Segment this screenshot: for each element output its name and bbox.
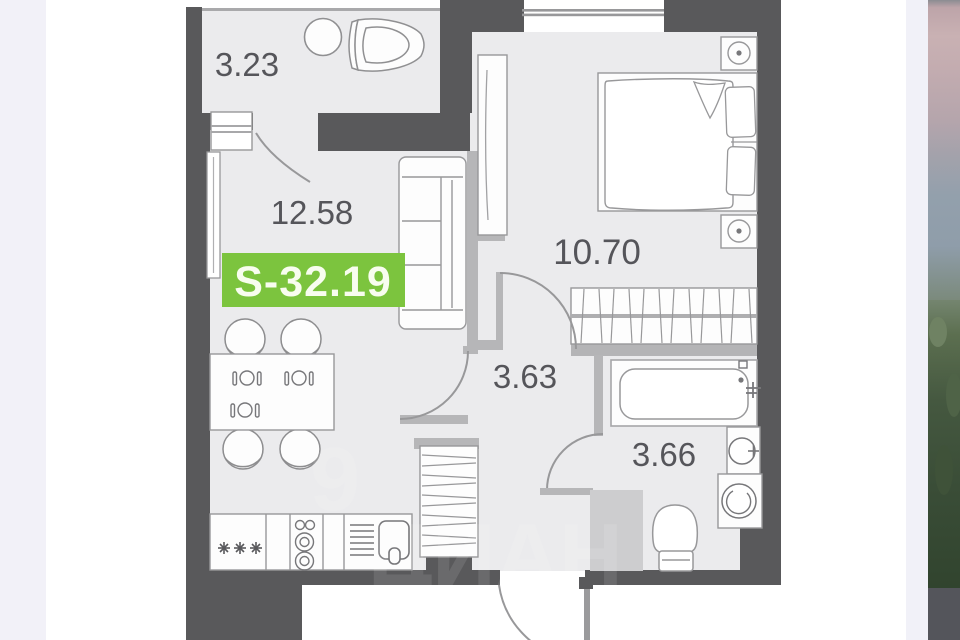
svg-text:3.66: 3.66	[632, 436, 696, 473]
svg-text:S-32.19: S-32.19	[234, 258, 392, 306]
svg-text:9: 9	[310, 430, 360, 530]
svg-text:3.23: 3.23	[215, 46, 279, 83]
svg-text:ЦИАН: ЦИАН	[368, 505, 623, 604]
svg-text:10.70: 10.70	[553, 233, 641, 272]
svg-text:3.63: 3.63	[493, 358, 557, 395]
svg-text:12.58: 12.58	[271, 194, 354, 231]
